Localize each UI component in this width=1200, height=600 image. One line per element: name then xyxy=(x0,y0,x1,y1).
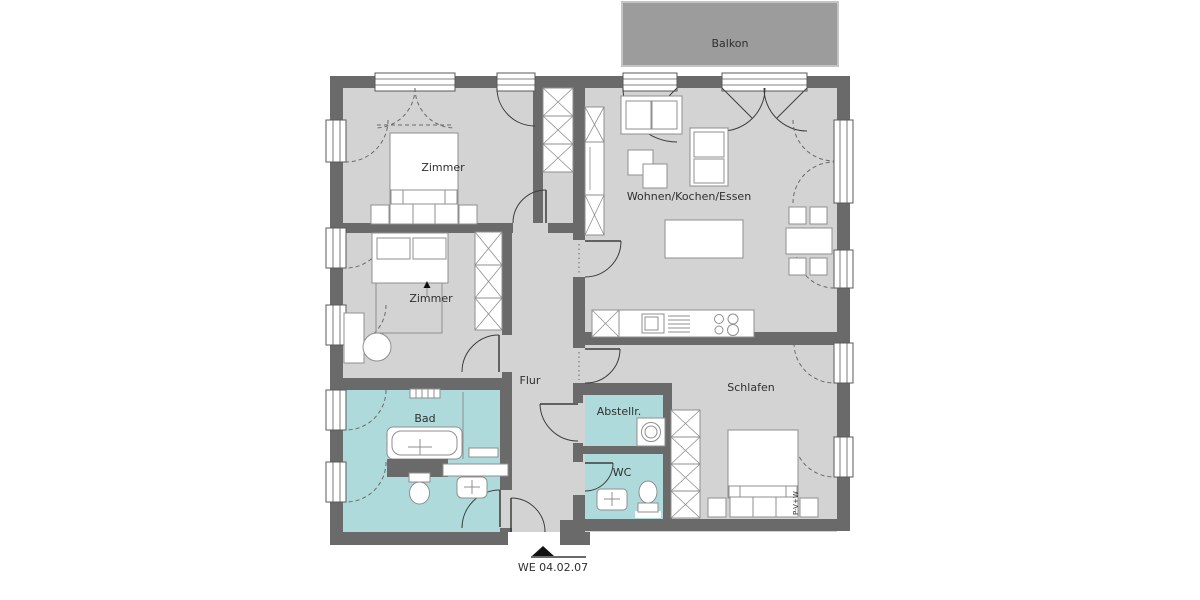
bench-schlafen xyxy=(730,497,798,517)
entrance-arrow-icon xyxy=(532,546,554,556)
table-round-zimmer2 xyxy=(363,333,391,361)
side-table-2 xyxy=(643,164,667,188)
nightstand-left xyxy=(708,498,726,517)
label-zimmer2: Zimmer xyxy=(409,292,453,305)
toilet-bad xyxy=(410,482,430,504)
balcony: Balkon xyxy=(622,2,838,66)
label-wc: WC xyxy=(613,466,632,479)
chair xyxy=(810,258,827,275)
fixtures-abstellraum xyxy=(637,418,665,446)
floor-plan-page: Balkon xyxy=(0,0,1200,600)
kitchen-counter xyxy=(592,310,754,337)
wall-zimmer2-flur-upper xyxy=(502,232,512,335)
wall-zimmer2-flur-lower xyxy=(502,372,512,378)
label-bad: Bad xyxy=(414,412,435,425)
balcony-slab xyxy=(622,2,838,66)
label-wohnen: Wohnen/Kochen/Essen xyxy=(627,190,751,203)
wall-flur-wohnen-a xyxy=(573,88,585,240)
wall-storage-top xyxy=(573,383,672,395)
cabinet-wohnen-column xyxy=(585,107,604,235)
wall-outer-bottom-left xyxy=(330,532,508,545)
wall-closet-stub xyxy=(548,223,573,233)
entrance-marker: WE 04.02.07 xyxy=(518,546,588,574)
bench-zimmer1 xyxy=(390,204,458,224)
label-zimmer1: Zimmer xyxy=(421,161,465,174)
nightstand-right xyxy=(459,205,477,224)
floor-plan-drawing: Balkon xyxy=(0,0,1200,600)
label-schlafen: Schlafen xyxy=(727,381,774,394)
wall-flur-wc-b xyxy=(573,495,585,532)
nightstand-left xyxy=(371,205,389,224)
chair xyxy=(789,258,806,275)
bed-annotation: P-V+W xyxy=(792,491,800,515)
toilet-bad-tank xyxy=(409,473,430,482)
radiator-bad xyxy=(410,389,440,398)
wall-outer-bottom-right xyxy=(578,519,850,531)
bad-counter xyxy=(443,464,508,476)
wall-storage-wc xyxy=(573,446,663,454)
toilet-wc xyxy=(639,481,657,503)
toilet-wc-tank xyxy=(638,503,658,512)
coffee-table xyxy=(665,220,743,258)
closet-flur-niche xyxy=(543,88,573,172)
dining-table xyxy=(786,228,832,254)
bad-shelf xyxy=(469,448,498,457)
wall-flur-storage-a xyxy=(573,395,583,403)
wardrobe-schlafen xyxy=(671,410,700,518)
nightstand-right xyxy=(800,498,818,517)
chair xyxy=(789,207,806,224)
bed-schlafen xyxy=(728,430,798,498)
label-abstellraum: Abstellr. xyxy=(597,405,641,418)
unit-label: WE 04.02.07 xyxy=(518,561,588,574)
balcony-label: Balkon xyxy=(711,37,748,50)
wall-zimmer2-bad xyxy=(330,378,512,390)
wall-flur-wohnen-b xyxy=(573,277,585,348)
wardrobe-zimmer2 xyxy=(475,232,502,330)
wall-bad-flur-lower xyxy=(500,528,512,532)
chair xyxy=(810,207,827,224)
label-flur: Flur xyxy=(520,374,541,387)
desk-zimmer2 xyxy=(344,313,364,363)
wall-zimmer1-closet xyxy=(533,88,543,223)
